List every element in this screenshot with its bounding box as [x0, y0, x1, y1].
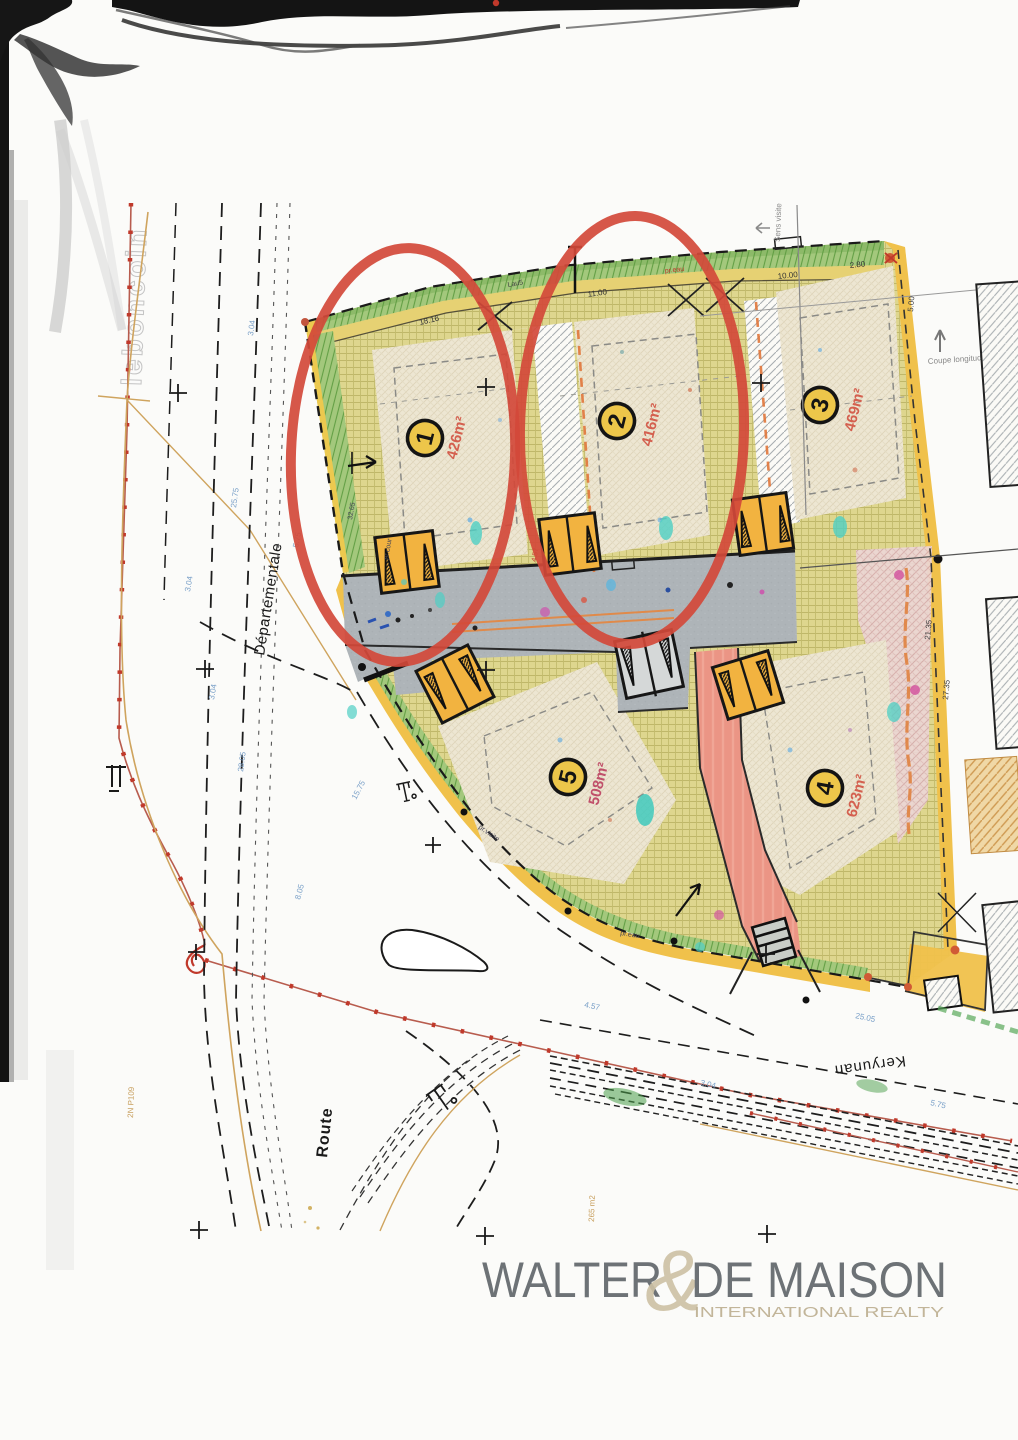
svg-text:Sens visite: Sens visite: [773, 203, 783, 243]
svg-text:265 m2: 265 m2: [587, 1195, 597, 1223]
svg-text:21.35: 21.35: [923, 619, 934, 640]
svg-text:DE MAISON: DE MAISON: [691, 1252, 947, 1308]
svg-text:27.35: 27.35: [941, 679, 952, 700]
svg-text:2N P109: 2N P109: [126, 1086, 136, 1118]
svg-text:5.00: 5.00: [906, 295, 916, 312]
svg-text:2.80: 2.80: [849, 259, 866, 270]
svg-text:WALTER: WALTER: [482, 1252, 662, 1308]
svg-text:INTERNATIONAL REALTY: INTERNATIONAL REALTY: [694, 1304, 944, 1321]
